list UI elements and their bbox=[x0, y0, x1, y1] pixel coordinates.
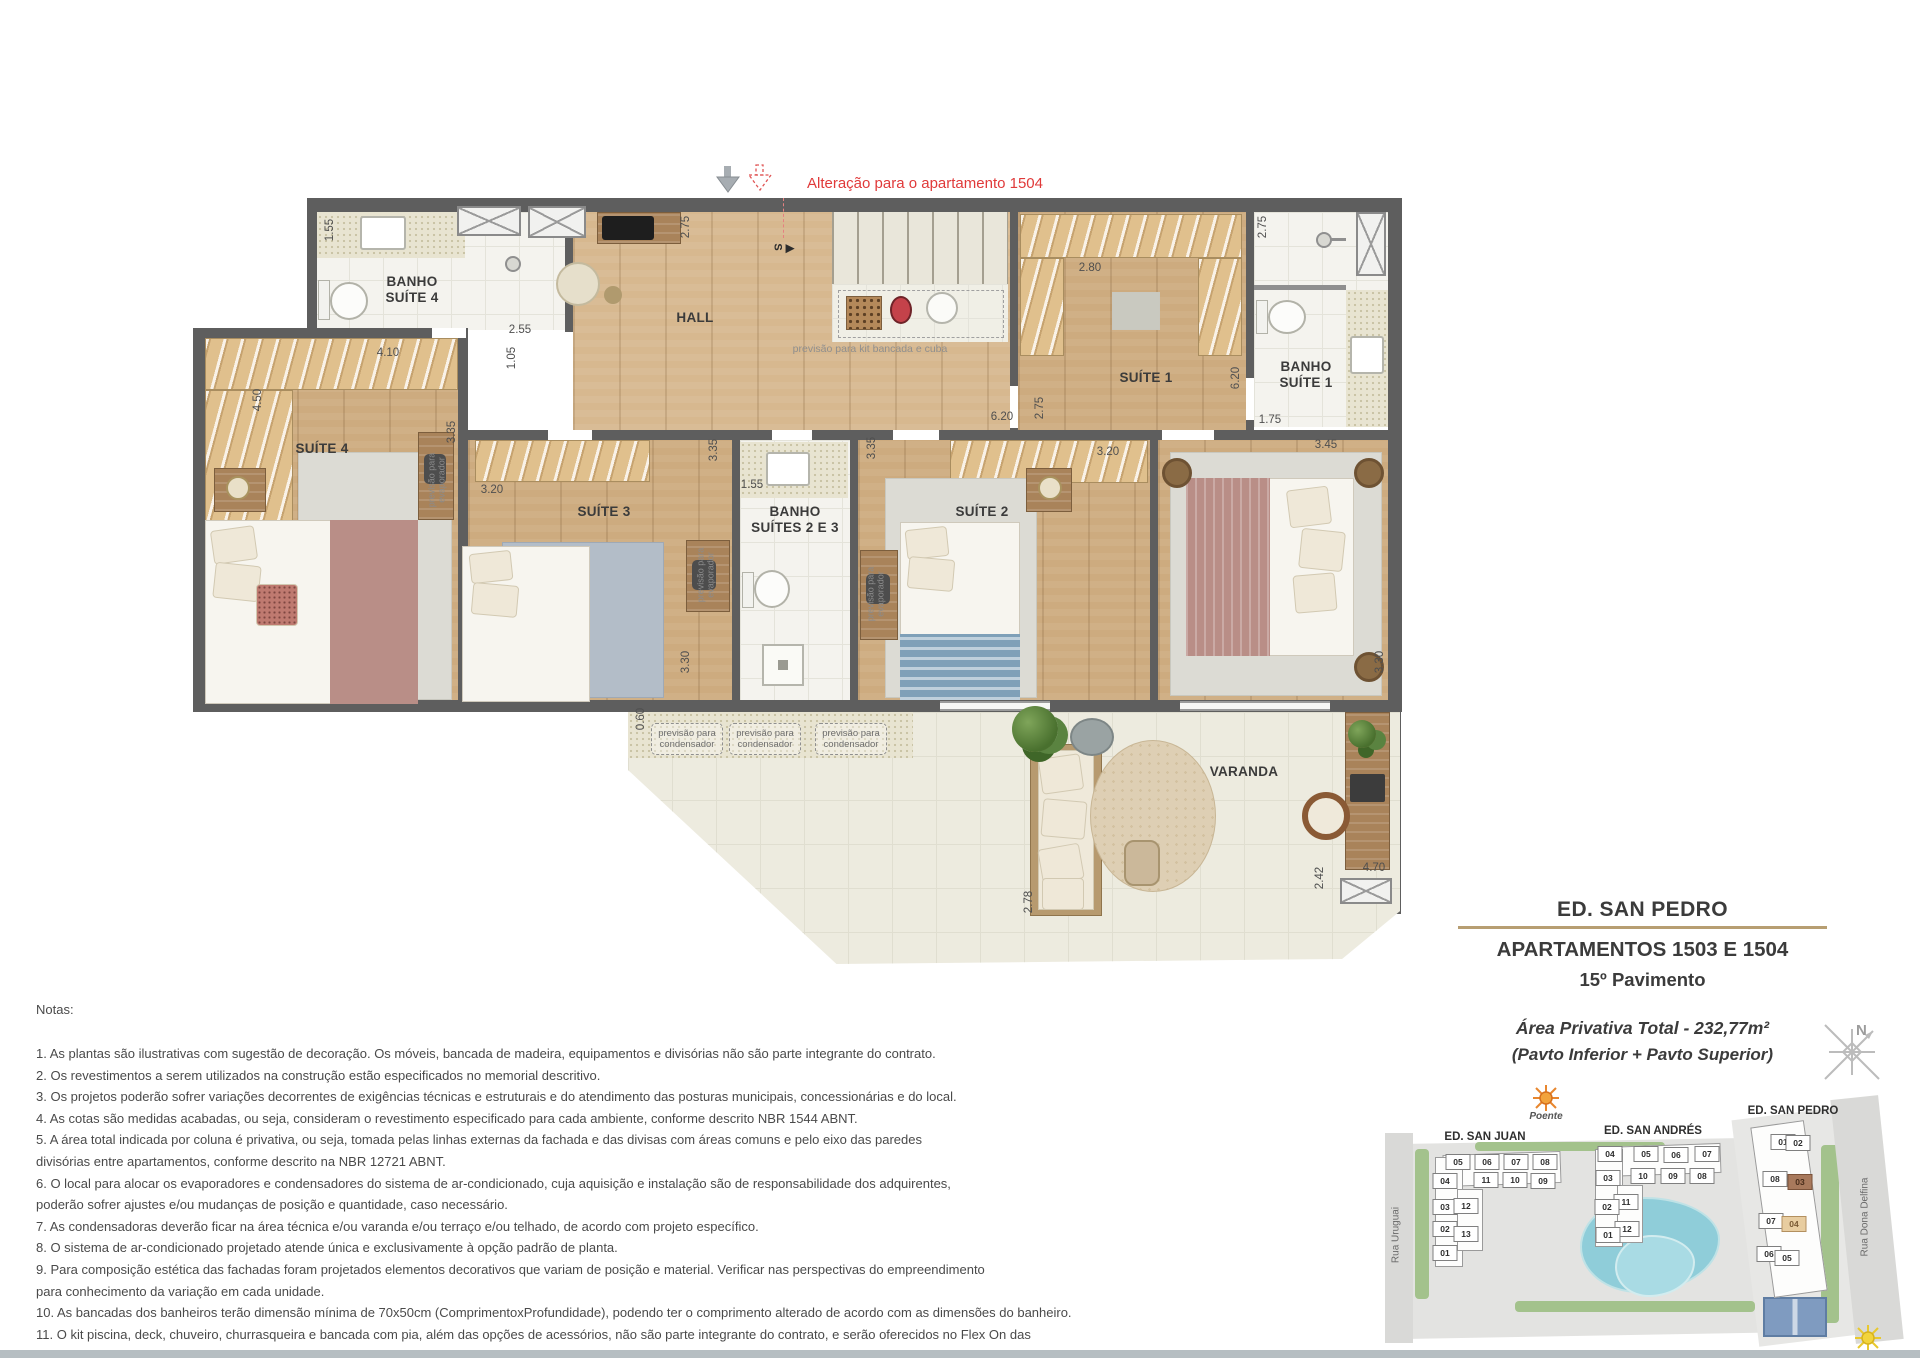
door-master bbox=[1162, 430, 1214, 440]
unit-item: 03 bbox=[1788, 1174, 1813, 1190]
note-line-item: 1. As plantas são ilustrativas com suges… bbox=[36, 1043, 1111, 1065]
cooktop-icon bbox=[890, 296, 912, 324]
note-line-item: 2. Os revestimentos a serem utilizados n… bbox=[36, 1065, 1111, 1087]
vtext-item: previsão para evaporador bbox=[427, 453, 448, 508]
condenser-label: previsão para condensador bbox=[736, 728, 794, 751]
building-title: ED. SAN PEDRO bbox=[1450, 898, 1835, 922]
dim-item: 4.50 bbox=[252, 389, 264, 411]
compass-north-label: N bbox=[1856, 1022, 1867, 1039]
note-line-item: poderão sofrer ajustes e/ou mudanças de … bbox=[36, 1194, 1111, 1216]
sink-icon bbox=[360, 216, 406, 250]
unit-item: 09 bbox=[1661, 1168, 1686, 1184]
dim-item: 2.42 bbox=[1314, 867, 1326, 889]
drain-icon bbox=[778, 660, 788, 670]
condenser-box: previsão para condensador bbox=[729, 723, 801, 755]
sports-court bbox=[1763, 1297, 1827, 1337]
wall bbox=[850, 440, 858, 702]
dim-item: 6.20 bbox=[991, 411, 1013, 423]
street-right-label: Rua Dona Delfina bbox=[1860, 1178, 1871, 1257]
footer-band bbox=[0, 1350, 1920, 1358]
unit-item: 09 bbox=[1531, 1173, 1556, 1189]
wall-left bbox=[193, 328, 205, 712]
unit-item: 04 bbox=[1782, 1216, 1807, 1232]
unit-item: 06 bbox=[1664, 1147, 1689, 1163]
dim-item: 3.30 bbox=[1374, 651, 1386, 673]
toilet-icon bbox=[1256, 300, 1268, 334]
armchair bbox=[556, 262, 600, 306]
lamp-icon bbox=[1038, 476, 1062, 500]
room-label-item: SUÍTE 4 bbox=[295, 441, 348, 457]
unit-item: 05 bbox=[1775, 1250, 1800, 1266]
dim-item: 2.75 bbox=[1034, 397, 1046, 419]
blanket bbox=[1186, 478, 1270, 656]
room-label-item: VARANDA bbox=[1210, 764, 1279, 780]
dim-item: 2.75 bbox=[1257, 216, 1269, 238]
pillow bbox=[1292, 572, 1337, 614]
note-line-item: 6. O local para alocar os evaporadores e… bbox=[36, 1173, 1111, 1195]
poente-sun-icon bbox=[1533, 1085, 1559, 1111]
pillow bbox=[905, 526, 950, 560]
dashed-arrow-icon bbox=[748, 164, 772, 192]
unit-item: 12 bbox=[1454, 1198, 1479, 1214]
unit-item: 13 bbox=[1454, 1226, 1479, 1242]
condenser-box: previsão para condensador bbox=[651, 723, 723, 755]
dim-item: 3.20 bbox=[481, 484, 503, 496]
pavements: (Pavto Inferior + Pavto Superior) bbox=[1450, 1045, 1835, 1065]
pillow bbox=[1040, 798, 1087, 840]
vtext-item: S bbox=[771, 243, 784, 250]
unit-item: 07 bbox=[1695, 1146, 1720, 1162]
apartments-title: APARTAMENTOS 1503 E 1504 bbox=[1450, 938, 1835, 962]
private-area: Área Privativa Total - 232,77m² bbox=[1450, 1018, 1835, 1039]
plant-icon bbox=[1012, 706, 1058, 752]
wall-shower-divider bbox=[1254, 285, 1346, 290]
note-line-item: 10. As bancadas dos banheiros terão dime… bbox=[36, 1302, 1111, 1324]
condenser-label: previsão para condensador bbox=[822, 728, 880, 751]
shaft-icon bbox=[1356, 212, 1386, 276]
pillow bbox=[256, 584, 298, 626]
notes-heading: Notas: bbox=[36, 1002, 1111, 1017]
wall bbox=[732, 440, 740, 702]
title-block: ED. SAN PEDRO APARTAMENTOS 1503 E 1504 1… bbox=[1450, 898, 1835, 1065]
wall bbox=[307, 198, 317, 338]
unit-item: 08 bbox=[1533, 1154, 1558, 1170]
compass-icon bbox=[1817, 1017, 1887, 1087]
dim-item: 1.75 bbox=[1259, 414, 1281, 426]
side-table bbox=[604, 286, 622, 304]
green-area bbox=[1415, 1149, 1429, 1299]
site-plan: Rua Uruguai Rua Dona Delfina ED. SAN JUA… bbox=[1385, 1085, 1915, 1358]
unit-item: 07 bbox=[1504, 1154, 1529, 1170]
door-banho4 bbox=[432, 328, 466, 338]
shaft-icon bbox=[1340, 878, 1392, 904]
unit-item: 01 bbox=[1596, 1227, 1621, 1243]
plant-icon bbox=[1348, 720, 1376, 748]
notes-lines: 1. As plantas são ilustrativas com suges… bbox=[36, 1043, 1111, 1358]
dim-item: 3.35 bbox=[446, 421, 458, 443]
title-rule bbox=[1458, 926, 1827, 929]
pillow bbox=[907, 556, 956, 592]
vtext-item: previsão para evaporador bbox=[696, 548, 717, 603]
side-table bbox=[1354, 458, 1384, 488]
dim-item: 1.55 bbox=[741, 479, 763, 491]
vtext-item: previsão para kit bancada e cuba bbox=[793, 343, 948, 355]
note-line-item: 9. Para composição estética das fachadas… bbox=[36, 1259, 1111, 1281]
dim-item: 0.60 bbox=[635, 708, 647, 730]
unit-item: 05 bbox=[1446, 1154, 1471, 1170]
door-banho23 bbox=[772, 430, 812, 440]
toilet-icon bbox=[330, 282, 368, 320]
unit-item: 08 bbox=[1690, 1168, 1715, 1184]
building-label: ED. SAN PEDRO bbox=[1748, 1105, 1839, 1117]
varanda: previsão para condensador previsão para … bbox=[628, 712, 1400, 964]
wall-right bbox=[1388, 198, 1402, 712]
lamp-icon bbox=[226, 476, 250, 500]
suite1-closet-top bbox=[1020, 214, 1242, 258]
laptop-icon bbox=[1350, 774, 1385, 802]
sink-icon bbox=[766, 452, 810, 486]
room-label-item: SUÍTE 1 bbox=[1119, 370, 1172, 386]
dim-item: 3.35 bbox=[866, 437, 878, 459]
nascente-sun-icon bbox=[1855, 1325, 1881, 1351]
office-chair bbox=[1302, 792, 1350, 840]
floorplan-page: previsão para condensador previsão para … bbox=[0, 0, 1920, 1358]
shaft-icon bbox=[528, 206, 586, 238]
condenser-label: previsão para condensador bbox=[658, 728, 716, 751]
note-line-item: divisórias entre apartamentos, conforme … bbox=[36, 1151, 1111, 1173]
pillow bbox=[471, 582, 520, 618]
unit-item: 08 bbox=[1763, 1171, 1788, 1187]
shower-icon bbox=[505, 256, 521, 272]
unit-item: 07 bbox=[1759, 1213, 1784, 1229]
pillow bbox=[469, 550, 514, 584]
dim-item: 2.55 bbox=[509, 324, 531, 336]
toilet-icon bbox=[1268, 300, 1306, 334]
door-suite2 bbox=[893, 430, 939, 440]
stairs bbox=[832, 212, 1008, 284]
dim-item: 2.78 bbox=[1023, 891, 1035, 913]
suite4-closet bbox=[205, 338, 458, 390]
room-label-item: BANHO SUÍTE 4 bbox=[385, 274, 438, 306]
alteration-note: Alteração para o apartamento 1504 bbox=[807, 175, 1043, 192]
shaft-icon bbox=[457, 206, 521, 236]
pillow bbox=[1042, 878, 1084, 910]
vtext-item: previsão para evaporador bbox=[866, 567, 887, 622]
notes-section: Notas: 1. As plantas são ilustrativas co… bbox=[36, 1002, 1111, 1358]
condenser-box: previsão para condensador bbox=[815, 723, 887, 755]
building-label: ED. SAN JUAN bbox=[1444, 1131, 1525, 1143]
side-table bbox=[1162, 458, 1192, 488]
pillow bbox=[212, 562, 262, 603]
unit-item: 10 bbox=[1503, 1172, 1528, 1188]
note-line-item: 5. A área total indicada por coluna é pr… bbox=[36, 1129, 1111, 1151]
room-label-item: BANHO SUÍTES 2 E 3 bbox=[751, 504, 839, 536]
unit-item: 04 bbox=[1433, 1173, 1458, 1189]
down-arrow-icon bbox=[716, 166, 740, 194]
note-line-item: 7. As condensadoras deverão ficar na áre… bbox=[36, 1216, 1111, 1238]
dim-item: 2.75 bbox=[680, 216, 692, 238]
dim-item: 2.80 bbox=[1079, 262, 1101, 274]
shower-arm bbox=[1330, 238, 1346, 241]
dim-item: 1.05 bbox=[506, 347, 518, 369]
dim-item: 3.30 bbox=[680, 651, 692, 673]
dim-item: 3.35 bbox=[708, 439, 720, 461]
stool bbox=[1124, 840, 1160, 886]
pillow bbox=[1038, 753, 1085, 794]
note-line-item: 11. O kit piscina, deck, chuveiro, churr… bbox=[36, 1324, 1111, 1346]
unit-item: 02 bbox=[1595, 1199, 1620, 1215]
suite3-closet bbox=[475, 440, 650, 482]
sink-icon bbox=[1350, 336, 1384, 374]
unit-item: 11 bbox=[1474, 1172, 1499, 1188]
alteration-line bbox=[783, 198, 784, 238]
dim-item: 6.20 bbox=[1230, 367, 1242, 389]
room-label-item: SUÍTE 2 bbox=[955, 504, 1008, 520]
dim-item: 1.55 bbox=[324, 219, 336, 241]
dim-item: 4.10 bbox=[377, 347, 399, 359]
note-line-item: 3. Os projetos poderão sofrer variações … bbox=[36, 1086, 1111, 1108]
blanket bbox=[330, 520, 418, 704]
round-sink-icon bbox=[926, 292, 958, 324]
unit-item: 05 bbox=[1634, 1146, 1659, 1162]
pillow bbox=[1298, 528, 1346, 572]
unit-item: 01 bbox=[1433, 1245, 1458, 1261]
unit-item: 03 bbox=[1596, 1170, 1621, 1186]
blanket bbox=[900, 634, 1020, 700]
dim-item: 3.45 bbox=[1315, 439, 1337, 451]
laptop-icon bbox=[602, 216, 654, 240]
pillow bbox=[210, 525, 258, 565]
room-label-item: HALL bbox=[676, 310, 713, 326]
unit-item: 06 bbox=[1475, 1154, 1500, 1170]
door-banho1 bbox=[1246, 378, 1254, 420]
door-suite3 bbox=[548, 430, 592, 440]
ottoman bbox=[1112, 292, 1160, 330]
unit-item: 10 bbox=[1631, 1168, 1656, 1184]
toilet-icon bbox=[318, 280, 330, 320]
round-table bbox=[1070, 718, 1114, 756]
wall bbox=[1150, 440, 1158, 702]
unit-item: 04 bbox=[1598, 1146, 1623, 1162]
pillow bbox=[1286, 486, 1332, 529]
toilet-icon bbox=[742, 572, 754, 608]
toilet-icon bbox=[754, 570, 790, 608]
room-label-item: SUÍTE 3 bbox=[577, 504, 630, 520]
suite1-closet-right bbox=[1198, 258, 1242, 356]
note-line-item: para conhecimento da variação em cada un… bbox=[36, 1281, 1111, 1303]
floor-title: 15º Pavimento bbox=[1450, 969, 1835, 991]
green-area bbox=[1515, 1301, 1755, 1312]
unit-item: 02 bbox=[1786, 1135, 1811, 1151]
vtext-item: ▶ bbox=[786, 243, 794, 256]
varanda-door bbox=[1180, 701, 1330, 711]
poente-label: Poente bbox=[1529, 1111, 1562, 1122]
building-label: ED. SAN ANDRÉS bbox=[1604, 1125, 1702, 1137]
note-line-item: 4. As cotas são medidas acabadas, ou sej… bbox=[36, 1108, 1111, 1130]
suite1-closet-left bbox=[1020, 258, 1064, 356]
wall bbox=[193, 328, 317, 338]
room-label-item: BANHO SUÍTE 1 bbox=[1279, 359, 1332, 391]
grill-icon bbox=[846, 296, 882, 330]
street-left-label: Rua Uruguai bbox=[1391, 1207, 1402, 1263]
note-line-item: 8. O sistema de ar-condicionado projetad… bbox=[36, 1237, 1111, 1259]
dim-item: 3.20 bbox=[1097, 446, 1119, 458]
dim-item: 4.70 bbox=[1363, 862, 1385, 874]
